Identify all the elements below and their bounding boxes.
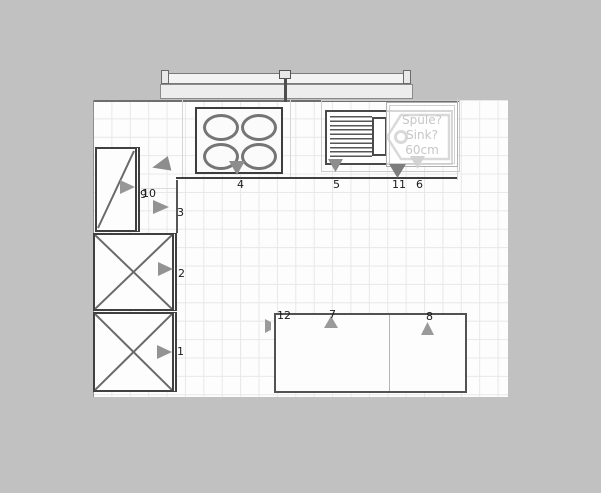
counter-section-line: [290, 100, 291, 177]
burner-icon: [241, 114, 277, 141]
base-cabinet-1[interactable]: [93, 312, 177, 392]
corner-cabinet-edge: [176, 180, 178, 233]
cabinet-x-icon: [95, 235, 172, 309]
tooltip-line-3: 60cm: [405, 143, 439, 157]
island-counter[interactable]: [274, 313, 467, 393]
island-section-right[interactable]: [389, 315, 465, 391]
cooktop[interactable]: [195, 107, 283, 174]
burner-icon: [241, 143, 277, 170]
island-section-left[interactable]: [276, 315, 389, 391]
drainboard-icon: [330, 116, 372, 160]
tooltip-line-2: Sink?: [406, 128, 438, 142]
burner-icon: [203, 143, 239, 170]
base-cabinet-2[interactable]: [93, 233, 177, 311]
counter-section-line: [182, 100, 183, 177]
window-center-mullion: [284, 79, 287, 102]
window-right-post: [403, 70, 411, 84]
tooltip-line-1: Spüle?: [402, 113, 442, 127]
door-swing-line: [97, 149, 135, 230]
window-center-cap: [279, 70, 291, 79]
kitchen-plan-canvas: Spüle? Sink? 60cm 451169103211278: [0, 0, 601, 493]
sink-tooltip-text: Spüle? Sink? 60cm: [389, 105, 455, 164]
corner-depth-line: [141, 188, 176, 189]
burner-icon: [203, 114, 239, 141]
tall-cabinet-door[interactable]: [95, 147, 140, 232]
cabinet-x-icon: [95, 314, 172, 390]
window-left-post: [161, 70, 169, 84]
sink-tooltip: Spüle? Sink? 60cm: [386, 102, 458, 167]
counter-front-edge: [176, 177, 457, 179]
